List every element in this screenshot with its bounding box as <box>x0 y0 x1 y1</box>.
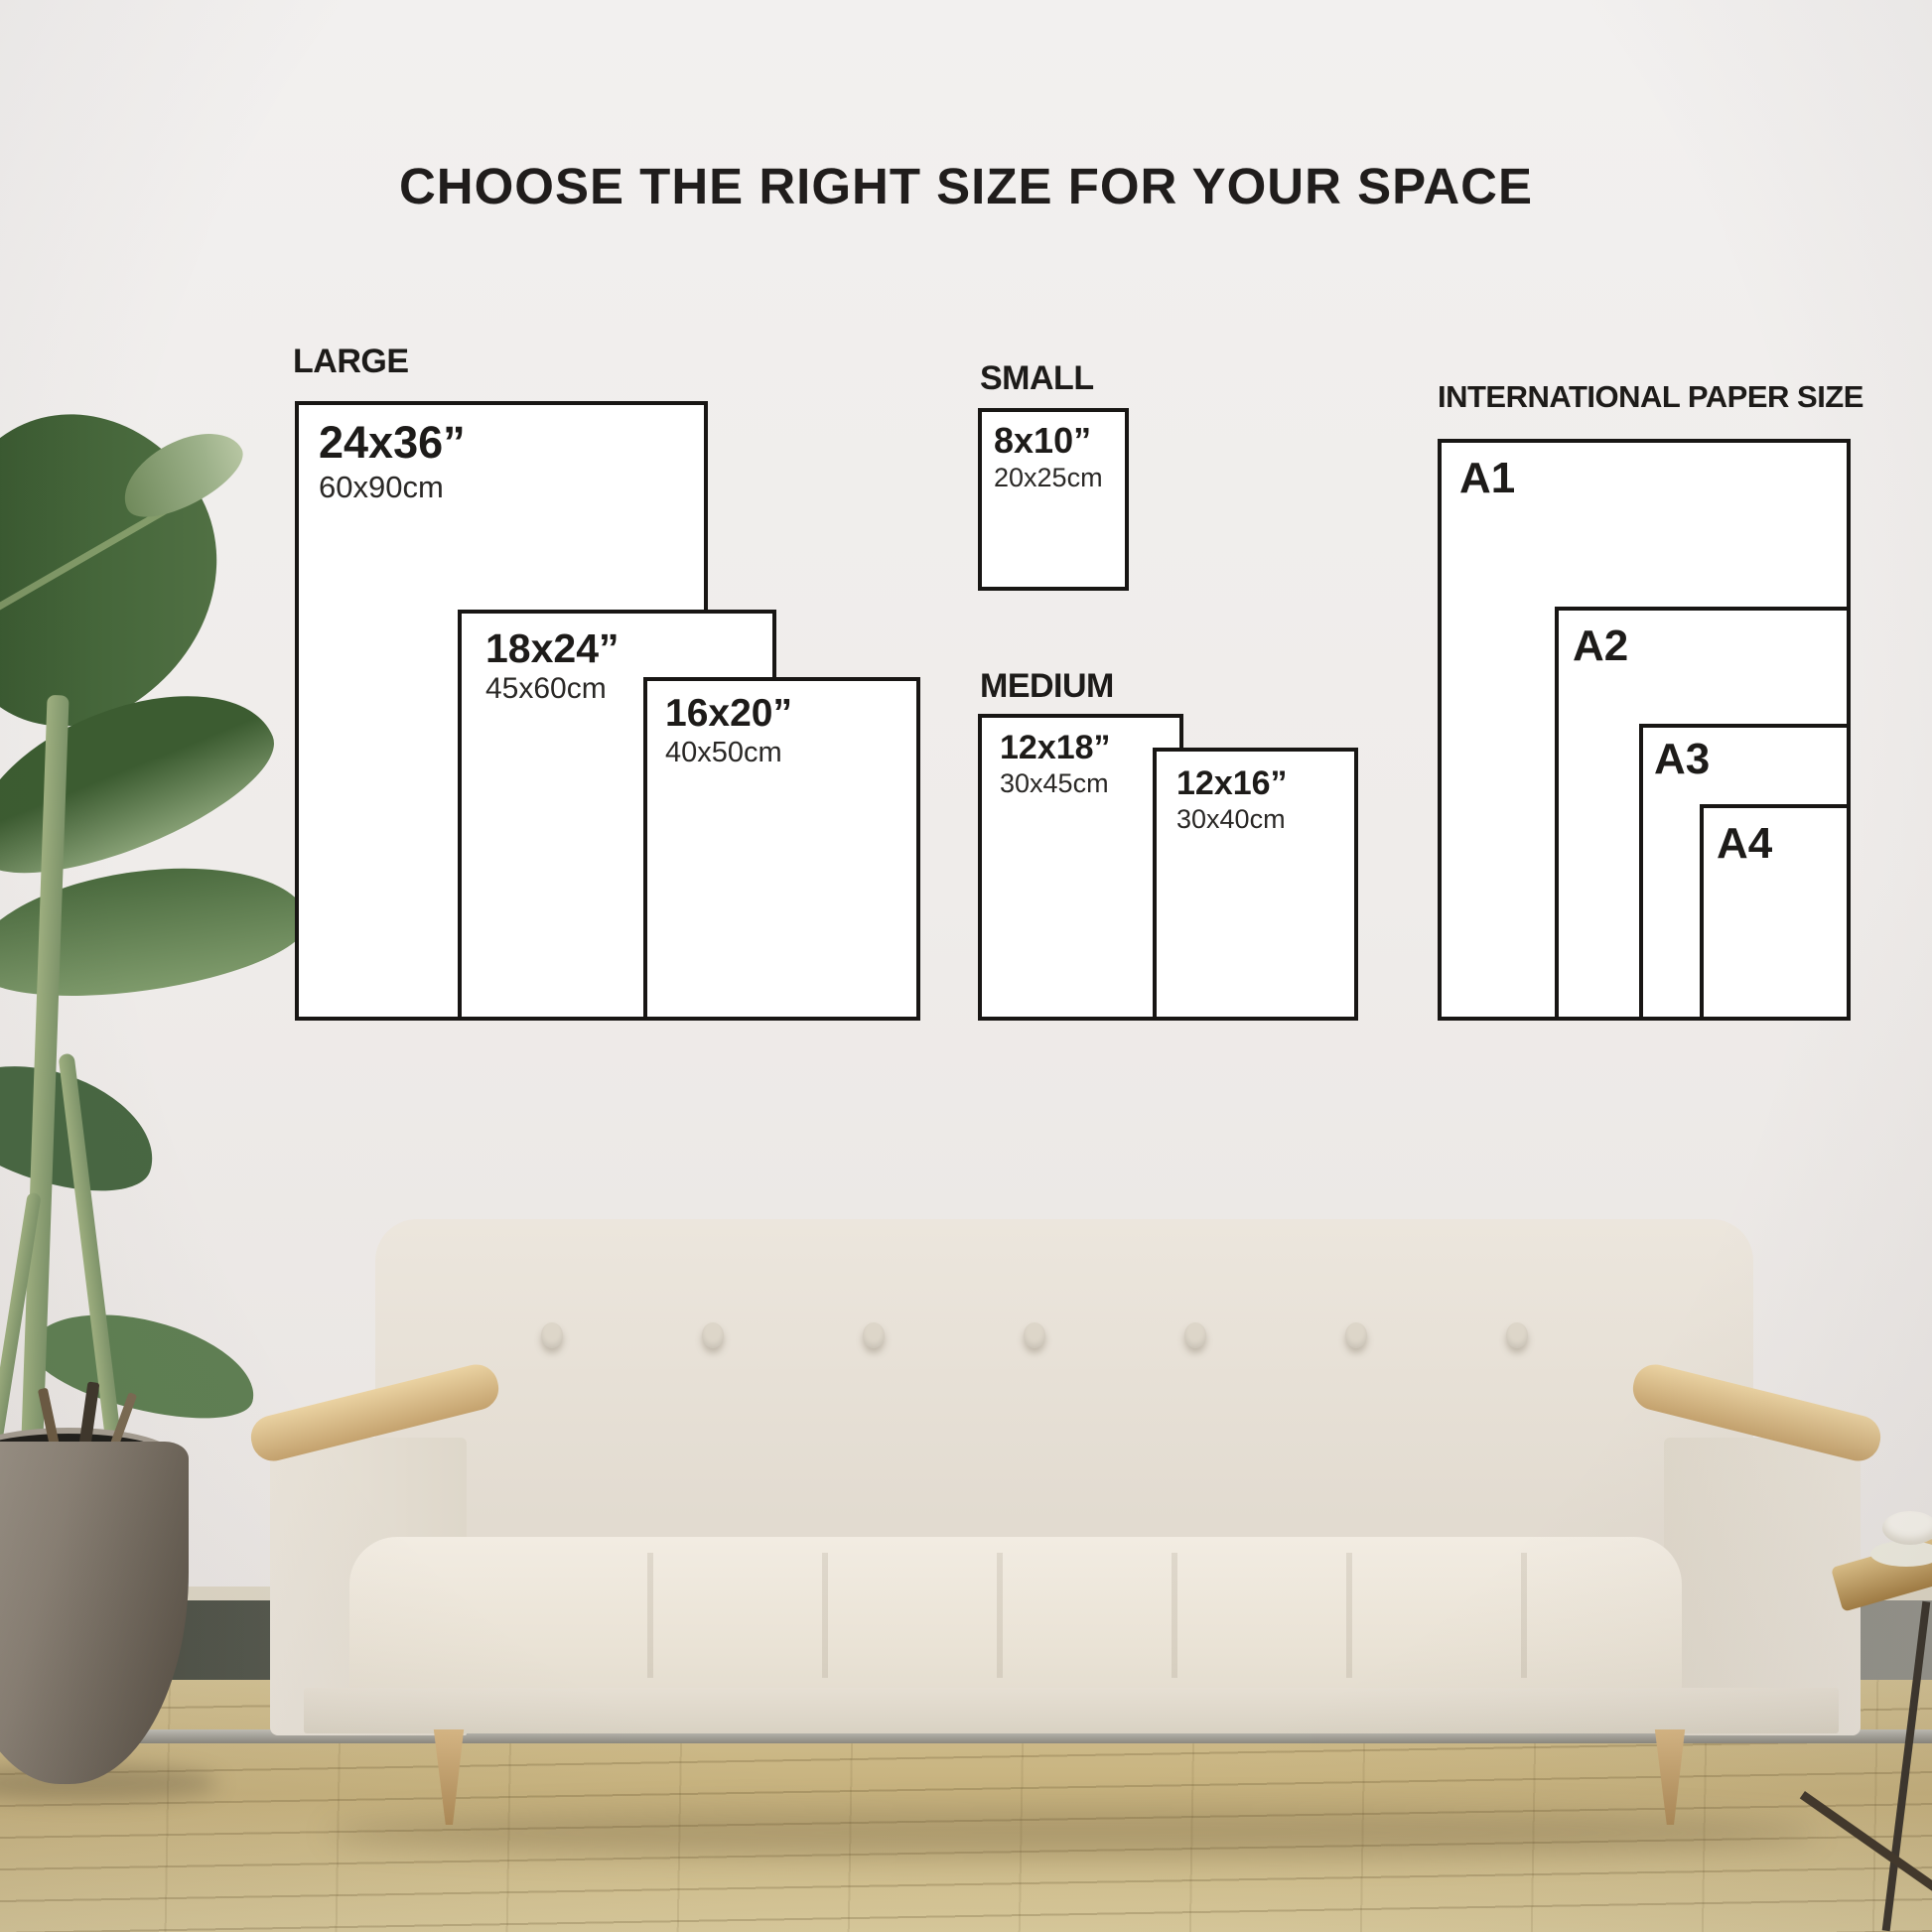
size-label-cm: 20x25cm <box>994 463 1125 493</box>
size-guide-image: CHOOSE THE RIGHT SIZE FOR YOUR SPACE LAR… <box>0 0 1932 1932</box>
sofa-button <box>702 1322 724 1348</box>
bowl <box>1882 1511 1932 1545</box>
size-label-inches: 12x16” <box>1176 765 1354 802</box>
size-label-inches: 16x20” <box>665 693 916 735</box>
size-label-code: A4 <box>1717 820 1847 868</box>
sofa-base-frame <box>304 1688 1839 1733</box>
sofa-button <box>1184 1322 1206 1348</box>
size-box-16x20: 16x20” 40x50cm <box>643 677 920 1021</box>
size-box-12x16: 12x16” 30x40cm <box>1153 748 1358 1021</box>
sofa-button <box>1506 1322 1528 1348</box>
size-label-code: A3 <box>1654 736 1847 783</box>
size-label-code: A1 <box>1459 455 1847 502</box>
group-label-medium: MEDIUM <box>980 667 1114 706</box>
size-label-inches: 8x10” <box>994 422 1125 461</box>
group-label-international: INTERNATIONAL PAPER SIZE <box>1438 379 1863 415</box>
group-label-small: SMALL <box>980 359 1094 398</box>
sofa-button <box>1024 1322 1045 1348</box>
size-box-8x10: 8x10” 20x25cm <box>978 408 1129 591</box>
size-label-cm: 60x90cm <box>319 470 704 505</box>
size-label-cm: 40x50cm <box>665 737 916 769</box>
size-label-cm: 30x40cm <box>1176 804 1354 835</box>
sofa-button <box>863 1322 885 1348</box>
sofa-button <box>541 1322 563 1348</box>
size-label-inches: 18x24” <box>485 626 772 670</box>
sofa-shadow <box>328 1807 1817 1859</box>
group-label-large: LARGE <box>293 343 409 381</box>
sofa-backrest <box>375 1219 1753 1577</box>
size-label-inches: 24x36” <box>319 419 704 468</box>
page-title: CHOOSE THE RIGHT SIZE FOR YOUR SPACE <box>0 157 1932 215</box>
plate <box>1870 1541 1932 1567</box>
size-box-a4: A4 <box>1700 804 1851 1021</box>
size-label-code: A2 <box>1573 622 1847 670</box>
sofa-button <box>1345 1322 1367 1348</box>
